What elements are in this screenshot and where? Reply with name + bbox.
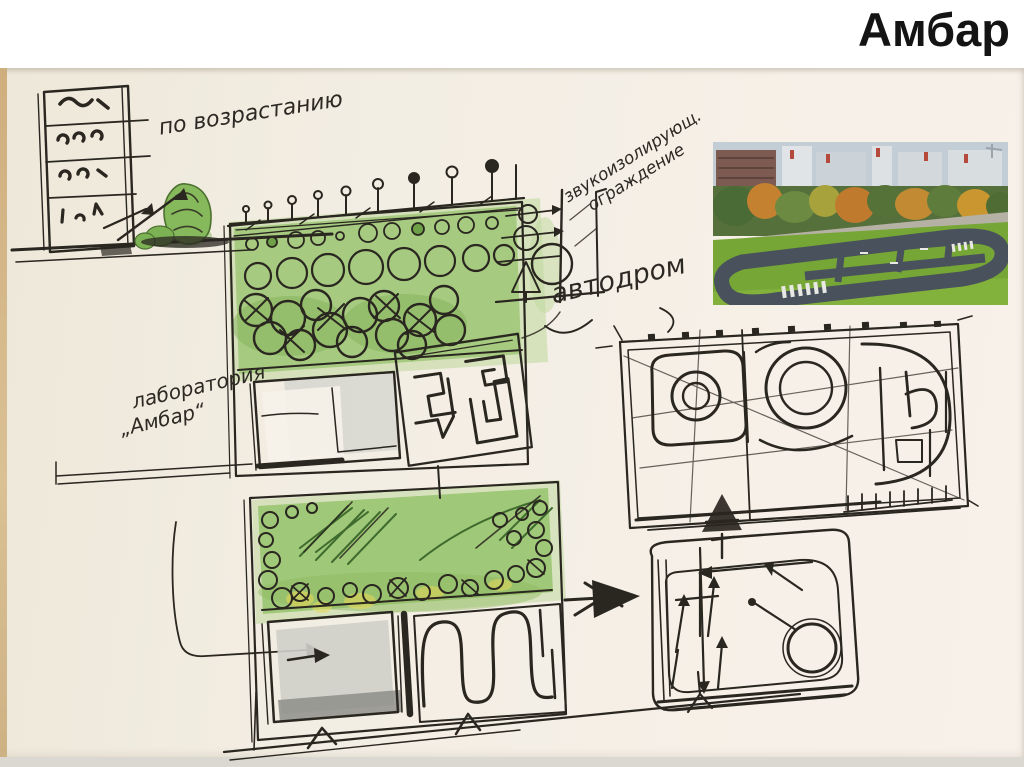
flow-diagram bbox=[651, 530, 858, 710]
presentation-slide: Амбар bbox=[0, 0, 1024, 767]
plan2-serpentine-track bbox=[414, 604, 566, 722]
arrow-up-left-icon bbox=[764, 562, 774, 576]
roundabout-circle bbox=[788, 624, 836, 672]
autodrome-plan-large bbox=[596, 316, 978, 558]
plan1-lab-building bbox=[250, 372, 400, 470]
arrow-up-icon bbox=[716, 636, 728, 648]
inset-render-photo bbox=[713, 142, 1014, 305]
tree-sketch bbox=[104, 184, 229, 249]
arrow-right-large bbox=[565, 580, 640, 618]
arrow-up-right-icon bbox=[141, 203, 154, 215]
plan2-lab-building bbox=[262, 612, 402, 724]
